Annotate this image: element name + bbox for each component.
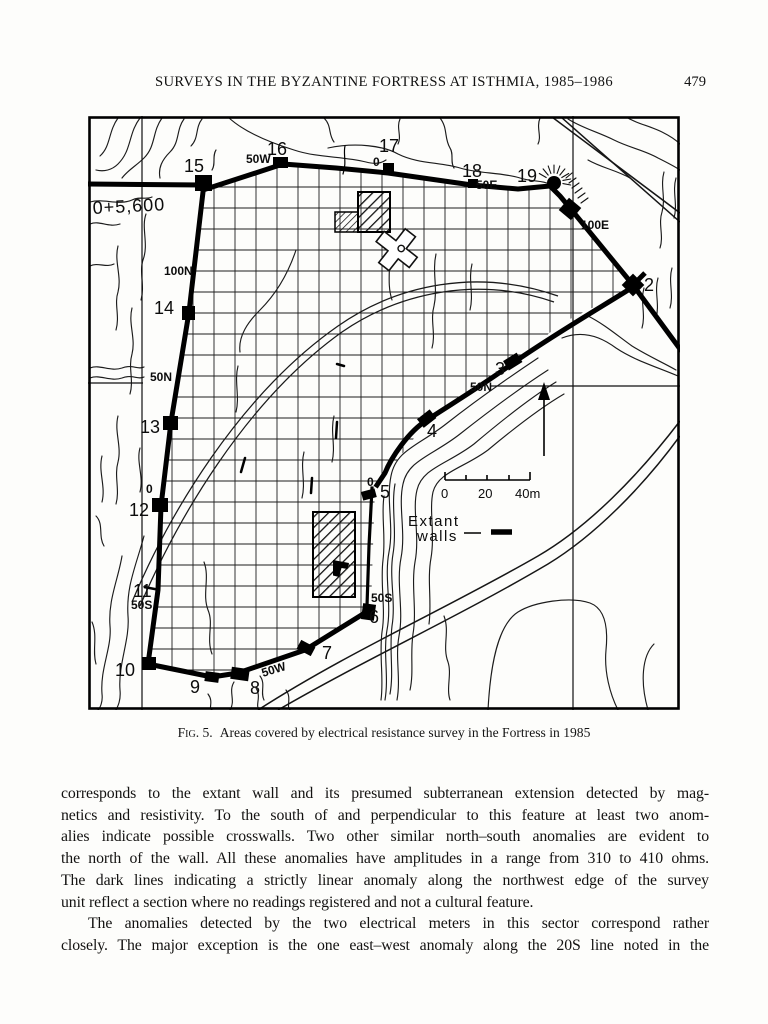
scale-label-0: 0	[441, 486, 448, 501]
tower-label-8: 8	[250, 678, 260, 698]
grid-label-50s-east: 50S	[371, 591, 392, 605]
scale-label-40m: 40m	[515, 486, 540, 501]
roads	[258, 117, 680, 710]
grid-label-50n-west: 50N	[150, 370, 172, 384]
body-text-line: The anomalies detected by the two electr…	[61, 913, 709, 935]
body-text-line: the north of the wall. All these anomali…	[61, 848, 709, 870]
grid-label-0-north: 0	[373, 155, 380, 169]
body-text-line: The dark lines indicating a strictly lin…	[61, 870, 709, 892]
tower-label-17: 17	[379, 136, 399, 156]
tower-label-19: 19	[517, 166, 537, 186]
tower-label-3: 3	[495, 359, 505, 379]
figure-caption-text: Areas covered by electrical resistance s…	[220, 725, 591, 740]
hatched-survey-areas	[313, 192, 390, 597]
datum-label: 0+5,600	[92, 194, 166, 218]
grid-label-50w-north: 50W	[246, 152, 271, 166]
tower-label-12: 12	[129, 500, 149, 520]
tower-label-13: 13	[140, 417, 160, 437]
tower-label-6: 6	[369, 607, 379, 627]
baseline-wall	[88, 184, 200, 185]
grid-label-0-center: 0	[367, 475, 374, 489]
scale-bar	[445, 472, 530, 480]
tower-label-9: 9	[190, 677, 200, 697]
body-text: corresponds to the extant wall and its p…	[61, 783, 709, 957]
figure-5-map: 151617181923456789101112131450W050E100E1…	[88, 116, 680, 710]
grid-label-100e: 100E	[581, 218, 609, 232]
tower-label-14: 14	[154, 298, 174, 318]
grid-label-100n: 100N	[164, 264, 193, 278]
body-text-line: unit reflect a section where no readings…	[61, 892, 709, 914]
grid-label-50e: 50E	[476, 178, 497, 192]
running-head: SURVEYS IN THE BYZANTINE FORTRESS AT IST…	[0, 74, 768, 91]
grid-label-0-west: 0	[146, 482, 153, 496]
tower-label-15: 15	[184, 156, 204, 176]
body-text-line: closely. The major exception is the one …	[61, 935, 709, 957]
tower-label-4: 4	[427, 421, 437, 441]
page-number: 479	[684, 74, 706, 91]
paper-page: SURVEYS IN THE BYZANTINE FORTRESS AT IST…	[0, 0, 768, 1024]
figure-caption: Fig. 5.Areas covered by electrical resis…	[0, 725, 768, 741]
legend-label-walls: walls	[416, 528, 458, 545]
grid-label-50s-west: 50S	[131, 598, 152, 612]
grid-label-50n-east: 50N	[470, 380, 492, 394]
tower-label-2: 2	[644, 275, 654, 295]
body-text-line: alies indicate possible crosswalls. Two …	[61, 826, 709, 848]
tower-label-7: 7	[322, 643, 332, 663]
tower-label-5: 5	[380, 482, 390, 502]
tower-label-10: 10	[115, 660, 135, 680]
legend-line-samples	[464, 532, 512, 533]
grid-tick-marks	[241, 146, 345, 493]
body-text-line: corresponds to the extant wall and its p…	[61, 783, 709, 805]
scale-label-20: 20	[478, 486, 492, 501]
body-text-line: netics and resistivity. To the south of …	[61, 805, 709, 827]
figure-caption-label: Fig. 5.	[178, 725, 213, 740]
